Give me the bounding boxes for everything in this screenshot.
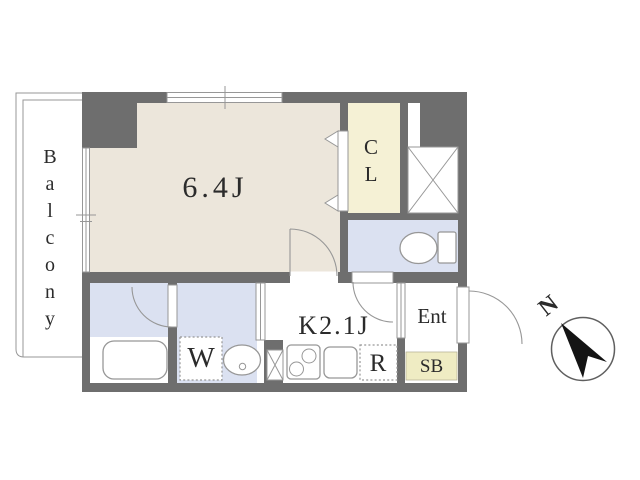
bath-door-leaf [168,285,177,327]
toilet-bowl [400,233,437,264]
toilet-tank [438,232,456,263]
wall-right [458,92,467,392]
floorplan-drawing [0,0,640,480]
kitchen-sink-icon [324,347,357,378]
wall-closet-bottom [340,213,458,220]
floorplan: Balcony 6.4J CL K2.1J W R Ent SB N [0,0,640,480]
wall-corner-block [82,92,137,148]
wall-kitchen-ent [397,338,405,383]
wall-ps-notch [420,103,458,147]
bathtub-icon [103,341,167,379]
closet-label: CL [360,135,381,189]
north-arrow [561,323,607,378]
washing-machine-label: W [180,344,222,373]
wash-basin-icon [224,345,261,375]
stove-icon [287,345,320,379]
toilet-icon [400,232,456,264]
kitchen-label: K2.1J [264,313,404,339]
main-door-opening [290,272,338,284]
balcony-label: Balcony [40,146,60,335]
wall-bottom [82,383,467,392]
wall-left-lower [82,272,90,392]
pipe-space-small [267,350,283,380]
refrigerator-label: R [359,351,397,376]
main-room-label: 6.4J [115,173,315,203]
toilet-door-leaf [352,272,393,283]
wall-mid-horizontal [82,272,458,283]
shoe-box-label: SB [406,357,457,376]
entrance-label: Ent [406,306,458,327]
front-door-leaf [457,287,469,343]
wall-closet-ps [400,103,408,213]
compass-icon [552,318,615,381]
front-door-arc [469,291,522,344]
basin-bowl [224,345,261,375]
folding-door-panel [338,131,348,211]
pipe-space-strip [408,103,420,147]
